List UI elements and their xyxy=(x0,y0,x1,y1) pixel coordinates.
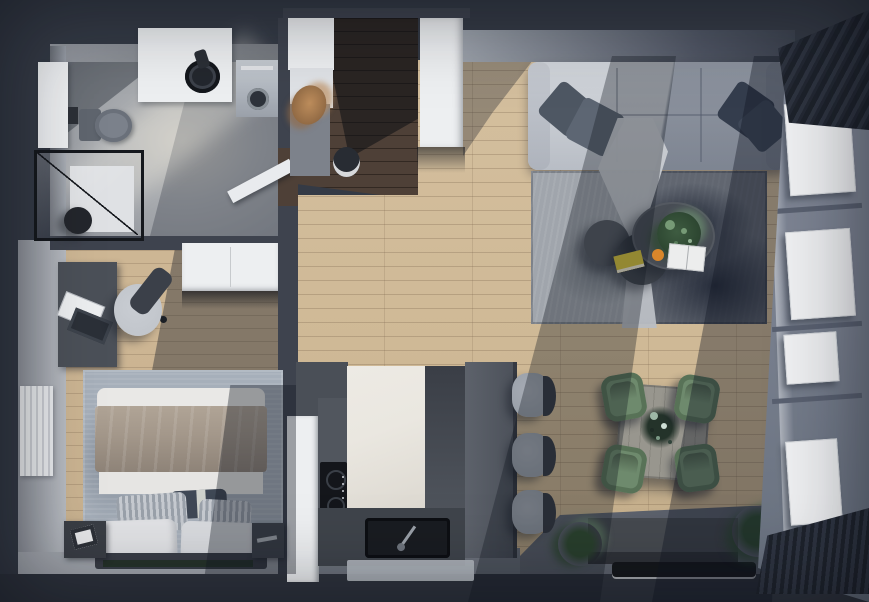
window xyxy=(783,331,839,385)
bathroom-sink-counter xyxy=(138,28,232,102)
dining-chair xyxy=(599,371,648,424)
media-console xyxy=(588,518,738,564)
kitchen-cabinet-column xyxy=(465,362,517,558)
bar-stool xyxy=(512,430,556,482)
bar-stool xyxy=(512,370,556,422)
wall-top-living xyxy=(463,30,795,62)
nightstand xyxy=(64,521,106,558)
washing-machine-door xyxy=(247,88,269,110)
toilet-bowl xyxy=(95,109,132,142)
dining-chair xyxy=(672,373,721,426)
window xyxy=(785,228,856,320)
wall-top-hallway xyxy=(283,8,470,18)
kitchen-island-dark-section xyxy=(425,366,465,510)
entry-pouf xyxy=(333,147,360,177)
bathroom-vanity-cabinet xyxy=(38,62,68,148)
window xyxy=(785,438,843,525)
radiator xyxy=(20,386,53,476)
hall-closet-column xyxy=(420,18,463,147)
floor-plant xyxy=(558,522,602,566)
bedroom-wardrobe xyxy=(182,243,278,291)
dining-chair xyxy=(599,443,648,496)
floorplan-stage xyxy=(0,0,869,602)
wardrobe-shadow xyxy=(182,291,278,309)
tv xyxy=(612,562,756,579)
kitchen-island-marble-top xyxy=(347,366,425,508)
toilet-flush-plate xyxy=(68,107,78,124)
washing-machine-panel xyxy=(241,66,273,70)
curtain xyxy=(778,10,869,130)
stool-back xyxy=(543,376,556,416)
dining-chair xyxy=(673,442,721,493)
hall-closet-upper xyxy=(288,18,334,70)
orange-fruit xyxy=(652,249,664,261)
bar-stool xyxy=(512,487,556,539)
bathroom-plant-stool xyxy=(64,207,92,234)
hall-closet-shadow xyxy=(417,147,465,173)
kitchen-floor-mat xyxy=(347,560,474,581)
open-book xyxy=(667,243,706,272)
stool-back xyxy=(543,493,556,533)
stool-back xyxy=(543,436,556,476)
